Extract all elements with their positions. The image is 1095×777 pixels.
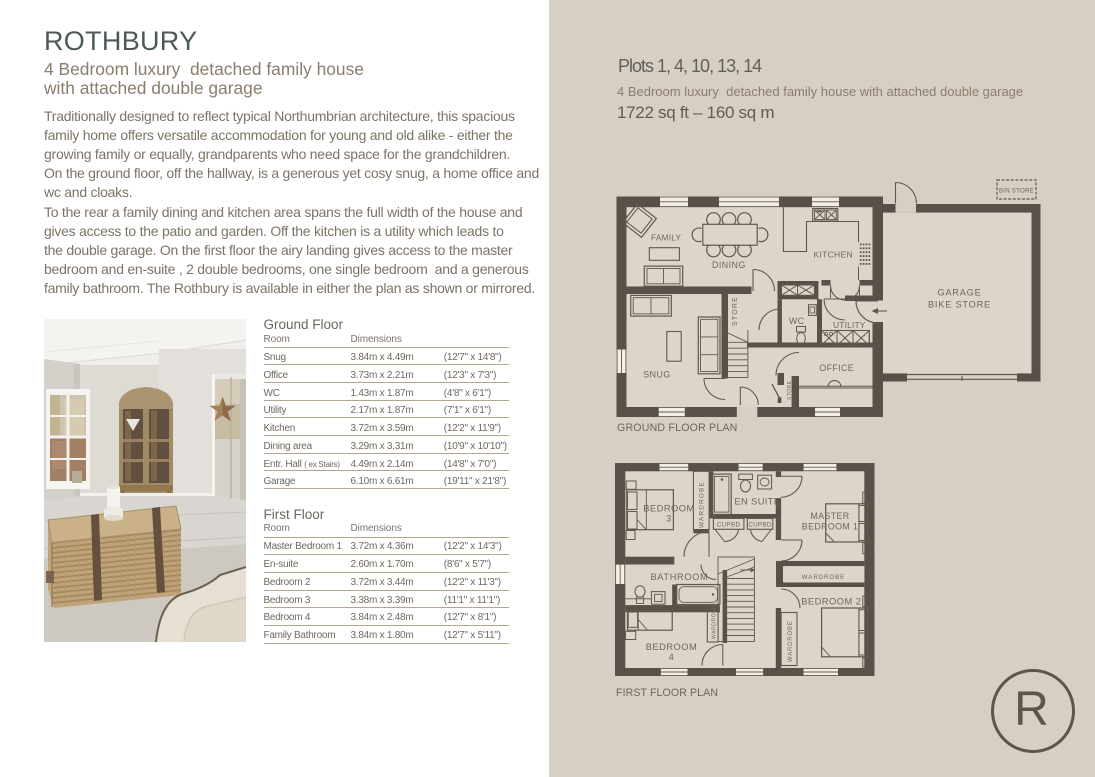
svg-text:BATHROOM: BATHROOM bbox=[651, 572, 709, 582]
svg-text:BEDROOM: BEDROOM bbox=[646, 642, 698, 652]
svg-text:BEDROOM: BEDROOM bbox=[643, 504, 695, 514]
svg-text:STORE: STORE bbox=[732, 296, 739, 326]
svg-text:BIN STORE: BIN STORE bbox=[999, 187, 1034, 194]
svg-text:KITCHEN: KITCHEN bbox=[814, 250, 853, 260]
svg-text:WARDROBE: WARDROBE bbox=[788, 620, 794, 662]
svg-text:BEDROOM 1: BEDROOM 1 bbox=[802, 522, 858, 532]
svg-text:UTILITY: UTILITY bbox=[833, 320, 866, 330]
svg-text:FAMILY: FAMILY bbox=[651, 233, 682, 242]
svg-text:WARDROBE: WARDROBE bbox=[712, 605, 718, 639]
svg-text:STORE: STORE bbox=[787, 380, 793, 400]
svg-text:GARAGE: GARAGE bbox=[937, 288, 981, 298]
svg-text:MASTER: MASTER bbox=[810, 511, 849, 521]
svg-text:DINING: DINING bbox=[712, 260, 746, 270]
svg-text:WC: WC bbox=[789, 316, 805, 326]
svg-text:WARDROBE: WARDROBE bbox=[699, 481, 706, 528]
svg-text:CUPBD: CUPBD bbox=[748, 522, 772, 529]
svg-text:3: 3 bbox=[666, 514, 672, 524]
svg-text:EN SUITE: EN SUITE bbox=[734, 497, 780, 507]
svg-text:CUPBD: CUPBD bbox=[717, 522, 741, 529]
svg-text:WARDROBE: WARDROBE bbox=[802, 574, 845, 581]
svg-text:OFFICE: OFFICE bbox=[819, 363, 854, 373]
svg-text:BEDROOM 2: BEDROOM 2 bbox=[801, 597, 861, 607]
svg-text:BIKE STORE: BIKE STORE bbox=[928, 300, 991, 310]
svg-text:SNUG: SNUG bbox=[643, 370, 670, 380]
svg-text:4: 4 bbox=[669, 652, 675, 662]
